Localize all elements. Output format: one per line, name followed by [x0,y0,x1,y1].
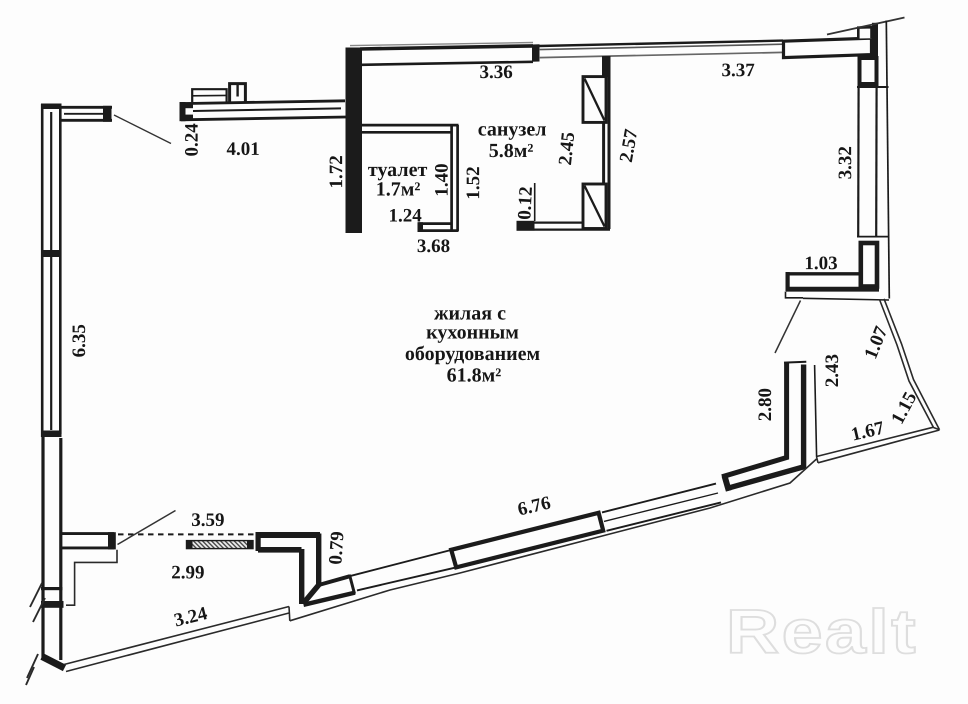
svg-text:1.24: 1.24 [388,205,422,226]
svg-text:0.79: 0.79 [325,531,348,566]
svg-text:оборудованием: оборудованием [405,343,540,365]
svg-text:0.24: 0.24 [182,123,203,157]
svg-text:кухонным: кухонным [426,321,519,343]
svg-text:0.12: 0.12 [514,186,537,220]
svg-text:1.40: 1.40 [432,163,453,196]
svg-text:2.43: 2.43 [822,354,843,387]
svg-text:61.8м²: 61.8м² [447,364,502,386]
svg-text:6.35: 6.35 [69,324,90,357]
svg-text:1.7м²: 1.7м² [376,178,421,200]
svg-text:2.45: 2.45 [555,131,579,166]
svg-text:санузел: санузел [478,118,547,140]
svg-text:1.72: 1.72 [326,155,347,188]
svg-text:4.01: 4.01 [226,139,259,160]
svg-text:3.32: 3.32 [835,146,856,179]
svg-text:1.03: 1.03 [804,253,837,274]
svg-text:3.36: 3.36 [480,62,513,83]
svg-text:3.68: 3.68 [417,236,450,257]
svg-text:2.80: 2.80 [755,388,776,421]
svg-text:Realt: Realt [726,598,918,667]
svg-text:1.52: 1.52 [463,166,484,199]
svg-text:3.59: 3.59 [191,510,224,531]
svg-text:3.37: 3.37 [722,60,756,81]
svg-text:5.8м²: 5.8м² [489,140,534,162]
svg-text:2.99: 2.99 [171,562,204,583]
